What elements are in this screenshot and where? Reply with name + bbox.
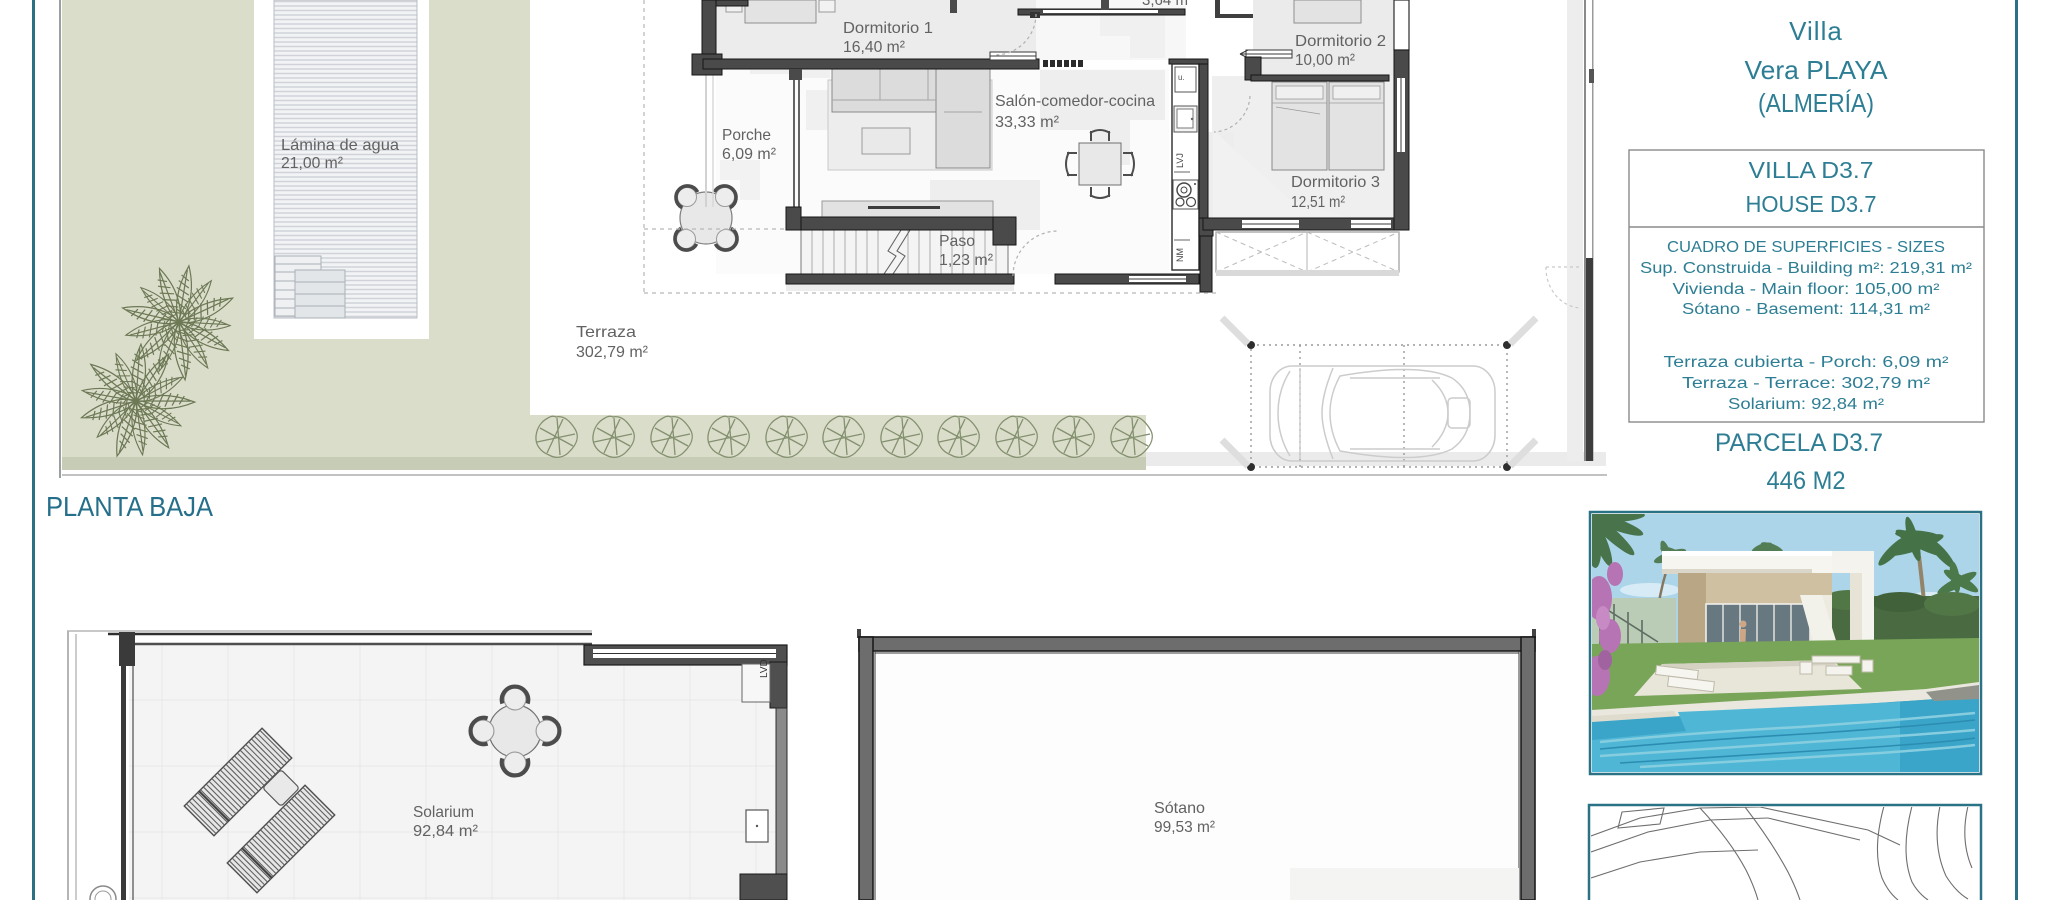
svg-text:Paso: Paso [939,233,975,250]
svg-text:16,40 m²: 16,40 m² [843,39,906,56]
svg-text:NM: NM [1175,248,1185,262]
svg-text:Vera PLAYA: Vera PLAYA [1745,55,1889,85]
svg-text:Sup. Construida - Building m²:: Sup. Construida - Building m²: 219,31 m² [1640,260,1972,277]
svg-text:10,00 m²: 10,00 m² [1295,52,1356,69]
svg-text:PARCELA D3.7: PARCELA D3.7 [1715,429,1883,457]
svg-text:Sótano: Sótano [1154,800,1205,817]
svg-text:u.: u. [1178,73,1185,82]
svg-text:Solarium: Solarium [413,804,474,821]
svg-text:VILLA D3.7: VILLA D3.7 [1749,157,1874,183]
svg-text:Porche: Porche [722,127,771,144]
svg-text:3,64 m: 3,64 m [1142,0,1188,9]
svg-text:21,00 m²: 21,00 m² [281,155,344,172]
svg-text:6,09 m²: 6,09 m² [722,146,777,163]
svg-text:Salón-comedor-cocina: Salón-comedor-cocina [995,93,1155,110]
svg-text:Lámina de agua: Lámina de agua [281,137,399,154]
svg-text:Solarium: 92,84 m²: Solarium: 92,84 m² [1728,396,1884,413]
svg-text:Dormitorio 1: Dormitorio 1 [843,20,933,37]
svg-text:Terraza cubierta - Porch: 6,09: Terraza cubierta - Porch: 6,09 m² [1664,354,1949,371]
svg-text:446 M2: 446 M2 [1767,467,1846,495]
svg-text:92,84 m²: 92,84 m² [413,823,479,840]
svg-text:1,23 m²: 1,23 m² [939,252,994,269]
svg-text:Vivienda - Main floor: 105,00: Vivienda - Main floor: 105,00 m² [1673,281,1940,298]
svg-text:PLANTA BAJA: PLANTA BAJA [46,491,213,522]
svg-text:Sótano - Basement: 114,31 m²: Sótano - Basement: 114,31 m² [1682,301,1930,318]
svg-text:302,79 m²: 302,79 m² [576,344,649,361]
svg-text:33,33 m²: 33,33 m² [995,114,1060,131]
svg-text:Villa: Villa [1789,16,1843,46]
svg-text:Dormitorio 2: Dormitorio 2 [1295,33,1386,50]
svg-text:CUADRO DE SUPERFICIES - SIZES: CUADRO DE SUPERFICIES - SIZES [1667,239,1945,256]
svg-text:99,53 m²: 99,53 m² [1154,819,1216,836]
svg-text:HOUSE D3.7: HOUSE D3.7 [1746,191,1877,217]
svg-text:(ALMERÍA): (ALMERÍA) [1758,88,1874,118]
svg-text:12,51 m²: 12,51 m² [1291,194,1346,211]
svg-text:Dormitorio 3: Dormitorio 3 [1291,174,1380,191]
svg-text:LVD: LVD [759,659,770,678]
svg-text:LVJ: LVJ [1175,153,1185,168]
svg-text:Terraza - Terrace: 302,79 m²: Terraza - Terrace: 302,79 m² [1682,375,1930,392]
svg-text:Terraza: Terraza [576,324,636,341]
